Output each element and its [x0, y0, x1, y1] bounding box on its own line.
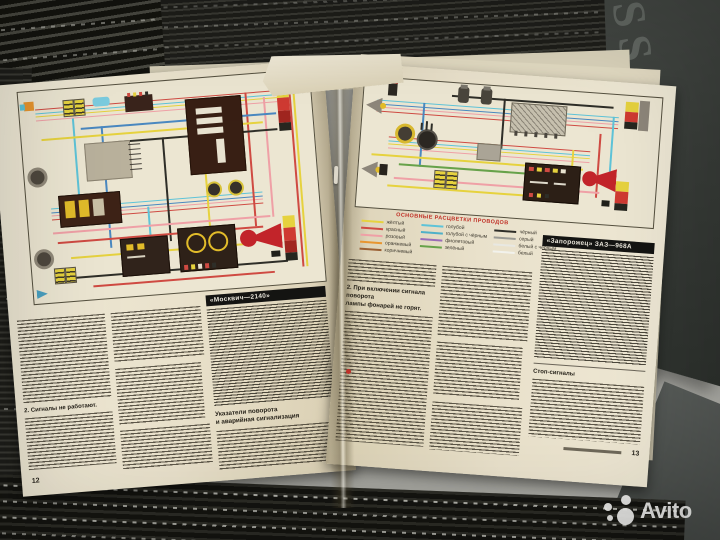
- text-column: [429, 266, 532, 456]
- coil-cylinder: [480, 88, 492, 105]
- body-text-block: [115, 362, 205, 425]
- tail-lamp: [624, 122, 637, 130]
- magazine-right-page: ОСНОВНЫЕ РАСЦВЕТКИ ПРОВОДОВ жёлтый красн…: [326, 63, 677, 488]
- legend-column: голубой голубой с чёрным фиолетовый зелё…: [419, 222, 488, 260]
- legend-color-swatch: [493, 250, 515, 253]
- tail-lamp: [284, 240, 297, 253]
- fuse-block: [445, 171, 458, 190]
- body-text-block: [429, 401, 522, 455]
- wiring-diagram-moskvich: [17, 68, 327, 305]
- photo-scene: ESSO IATO: [0, 0, 720, 540]
- wire-segment: [162, 137, 172, 241]
- legend-color-swatch: [495, 229, 517, 232]
- body-text-block: [433, 341, 523, 401]
- tail-lamp-housing: [638, 101, 650, 132]
- red-mark: [346, 369, 351, 374]
- caption-text-block: [207, 300, 334, 407]
- legend-color-swatch: [360, 248, 382, 251]
- front-lamp-icon: [20, 104, 25, 110]
- connector-plug: [379, 164, 388, 176]
- body-text-block: [528, 379, 644, 445]
- switch-pin: [205, 263, 209, 268]
- mat-stitch-row: [0, 18, 158, 32]
- legend-color-swatch: [494, 243, 516, 246]
- turn-fault-heading: 2. При включении сигнала поворота лампы …: [345, 284, 435, 314]
- avito-logo-circle: [607, 515, 613, 521]
- relay-box: [476, 143, 501, 162]
- terminal-pin: [145, 91, 148, 95]
- legend-color-swatch: [420, 238, 442, 241]
- legend-label: белый: [518, 250, 533, 257]
- fuse-block: [73, 99, 85, 117]
- wire-segment: [263, 97, 274, 217]
- text-column: 2. Сигналы не работают.: [17, 314, 117, 471]
- legend-label: зелёный: [444, 245, 464, 252]
- switch-pin: [553, 169, 558, 173]
- connector-pin: [130, 168, 142, 170]
- text-column: [111, 306, 213, 471]
- legend-color-swatch: [420, 245, 442, 248]
- horn-icon: [27, 167, 49, 189]
- legend-color-swatch: [421, 231, 443, 234]
- wire-segment: [500, 99, 505, 149]
- avito-watermark: Avito: [604, 495, 692, 527]
- legend-color-swatch: [361, 227, 383, 230]
- regulator-pin: [534, 132, 537, 137]
- horn-icon: [33, 249, 55, 271]
- switch-pin: [184, 265, 188, 270]
- connector-comb: [84, 140, 133, 182]
- switch-pin: [529, 167, 534, 171]
- mat-stitch-row: [0, 48, 160, 62]
- tail-lamp: [614, 203, 627, 211]
- legend-label: коричневый: [384, 247, 412, 255]
- voltage-regulator: [509, 102, 567, 136]
- body-text-block: [25, 411, 117, 470]
- switch-pin: [529, 193, 533, 197]
- relay-element: [78, 200, 89, 218]
- washer-tank-icon: [92, 97, 110, 107]
- relay-element: [92, 198, 104, 216]
- arrow-marker: [37, 289, 49, 299]
- switch-pin: [191, 264, 195, 269]
- coil-cylinder: [458, 86, 470, 103]
- horn-trumpet-icon: [239, 229, 257, 247]
- avito-logo-icon: [604, 495, 635, 527]
- credit-line: [564, 447, 622, 454]
- legend-color-swatch: [360, 241, 382, 244]
- regulator-pin: [544, 133, 547, 138]
- connector-plug: [271, 250, 280, 257]
- legend-color-swatch: [361, 234, 383, 237]
- wire-segment: [244, 93, 256, 227]
- legend-color-swatch: [362, 220, 384, 223]
- relay-element: [126, 244, 133, 251]
- page-number-left: 12: [32, 477, 40, 485]
- switch-pin: [198, 264, 202, 269]
- legend-color-swatch: [494, 236, 516, 239]
- body-text-block: [347, 259, 436, 287]
- avito-watermark-text: Avito: [640, 498, 692, 524]
- tail-lamp: [277, 97, 290, 111]
- connector-pin: [128, 143, 140, 145]
- relay-element: [137, 243, 144, 250]
- switch-pin: [545, 168, 550, 172]
- page-number-right: 13: [631, 450, 639, 458]
- avito-logo-circle: [604, 503, 612, 511]
- avito-logo-circle: [617, 508, 634, 525]
- body-text-block: [216, 421, 339, 470]
- switch-pin: [537, 167, 542, 171]
- switch-pin: [212, 263, 216, 268]
- switch-pin: [545, 194, 549, 198]
- avito-logo-circle: [621, 495, 631, 505]
- tail-lamp: [283, 227, 296, 241]
- regulator-pin: [524, 131, 527, 136]
- distributor-wire: [430, 123, 433, 130]
- terminal-pin: [127, 93, 130, 97]
- body-text-block: [17, 314, 111, 405]
- wire-segment: [61, 260, 288, 280]
- switch-pin: [561, 169, 566, 173]
- fuse-block: [65, 267, 77, 284]
- body-text-block: [111, 306, 205, 363]
- text-column: «Москвич—2140» Указатели поворота и авар…: [206, 286, 340, 471]
- terminal-pin: [133, 92, 136, 96]
- legend-column: жёлтый красный розовый оранжевый коричне…: [359, 218, 414, 255]
- connector-pin: [129, 158, 141, 160]
- tail-lamp: [285, 252, 298, 261]
- tail-lamp: [279, 122, 292, 131]
- page-fold: [327, 60, 355, 508]
- magazine-left-page: 2. Сигналы не работают. «Москвич—2140» У…: [0, 59, 356, 496]
- legend-label: серый: [519, 236, 534, 243]
- connector-pin: [129, 153, 141, 155]
- connector-pin: [129, 148, 141, 150]
- coil-cap: [483, 86, 490, 91]
- caption-text-block: [534, 249, 654, 367]
- wiring-diagram-zaporozhets: [355, 75, 664, 229]
- legend-label: чёрный: [519, 229, 537, 236]
- body-text-block: [120, 424, 213, 471]
- staple: [334, 166, 339, 184]
- body-text-block: [437, 266, 532, 342]
- tail-lamp: [282, 215, 295, 228]
- terminal-pin: [139, 92, 142, 96]
- regulator-pin: [554, 134, 557, 139]
- coil-cap: [461, 85, 468, 90]
- relay-element: [65, 201, 76, 219]
- text-column: «Запорожец» ЗАЗ—968А Стоп-сигналы 13: [527, 235, 654, 458]
- legend-color-swatch: [421, 224, 443, 227]
- switch-pin: [537, 193, 541, 197]
- regulator-pin: [514, 131, 517, 136]
- wire-segment: [595, 134, 601, 198]
- connector-plug: [601, 200, 609, 207]
- tail-lamp: [278, 110, 291, 123]
- connector-pin: [130, 163, 142, 165]
- tail-lamp: [615, 191, 629, 204]
